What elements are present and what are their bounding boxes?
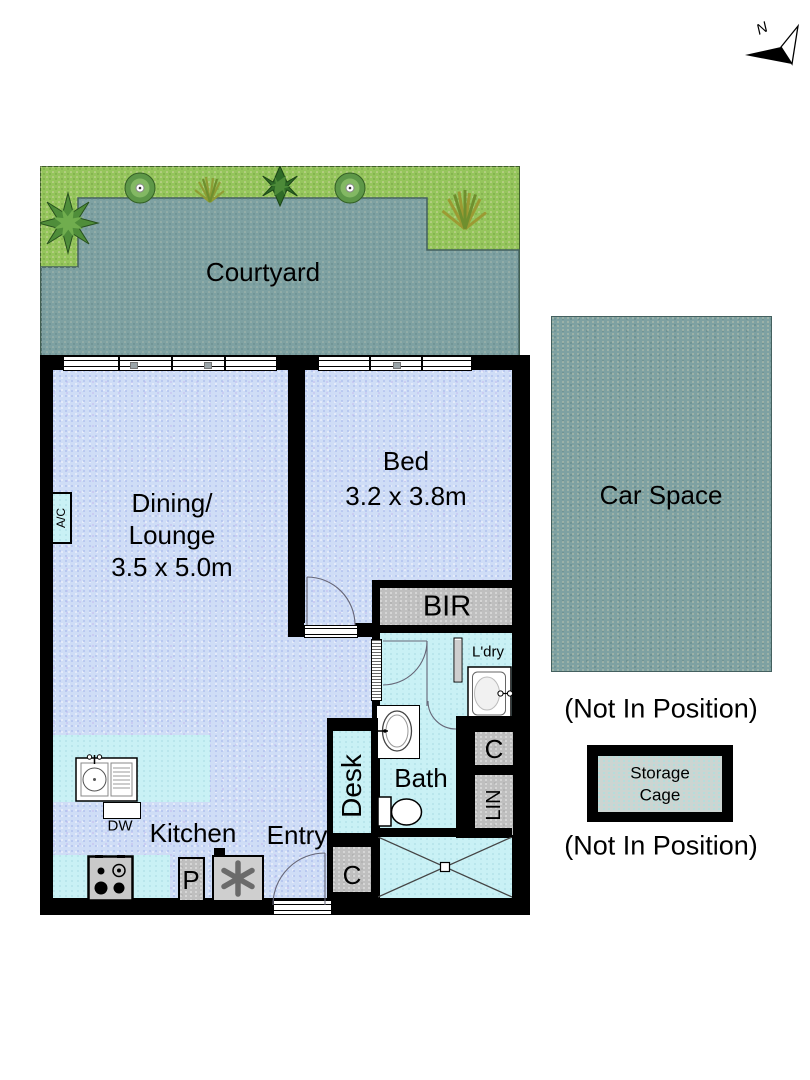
asterisk-icon	[214, 857, 262, 900]
storage-label-line1: Storage	[630, 765, 690, 782]
storage-note: (Not In Position)	[564, 833, 758, 860]
plant-shrub-icon	[125, 173, 155, 203]
dining-label-line1: Dining/	[132, 490, 213, 516]
laundry-label: L'dry	[472, 645, 504, 660]
bedroom-door-swing	[295, 570, 365, 640]
stove-cooktop	[87, 855, 134, 902]
window-dining	[63, 356, 277, 371]
dishwasher-label: DW	[108, 819, 133, 834]
bedroom-dimensions: 3.2 x 3.8m	[345, 483, 466, 509]
bir-label: BIR	[423, 593, 471, 622]
north-label: N	[754, 19, 771, 39]
floor-plan: N	[0, 0, 810, 1080]
laundry-tub	[467, 665, 513, 723]
bath-basin	[376, 705, 420, 759]
north-arrow-icon: N	[735, 12, 805, 72]
car-space-note: (Not In Position)	[564, 696, 758, 723]
ac-label: A/C	[55, 508, 67, 528]
pantry-label: P	[182, 867, 199, 893]
plant-shrub-icon	[335, 173, 365, 203]
linen-label: LIN	[484, 789, 504, 820]
fridge-box	[212, 855, 264, 902]
bath-label: Bath	[394, 765, 448, 791]
desk-label: Desk	[338, 754, 366, 818]
car-space-label: Car Space	[600, 482, 723, 508]
kitchen-label: Kitchen	[150, 820, 237, 846]
shower	[372, 837, 512, 898]
kitchen-sink	[75, 754, 139, 802]
courtyard-label: Courtyard	[206, 259, 320, 285]
dining-dimensions: 3.5 x 5.0m	[111, 554, 232, 580]
wall-shower-top	[372, 828, 512, 837]
bedroom-label: Bed	[383, 448, 429, 474]
dishwasher-box	[103, 802, 141, 819]
window-bedroom	[318, 356, 472, 371]
cupboard-entry-label: C	[343, 862, 362, 888]
dining-label-line2: Lounge	[129, 522, 216, 548]
cupboard-bath-label: C	[485, 736, 504, 762]
entry-label: Entry	[267, 822, 328, 848]
entry-door-swing	[270, 848, 332, 910]
toilet	[377, 795, 423, 829]
storage-label-line2: Cage	[640, 787, 681, 804]
